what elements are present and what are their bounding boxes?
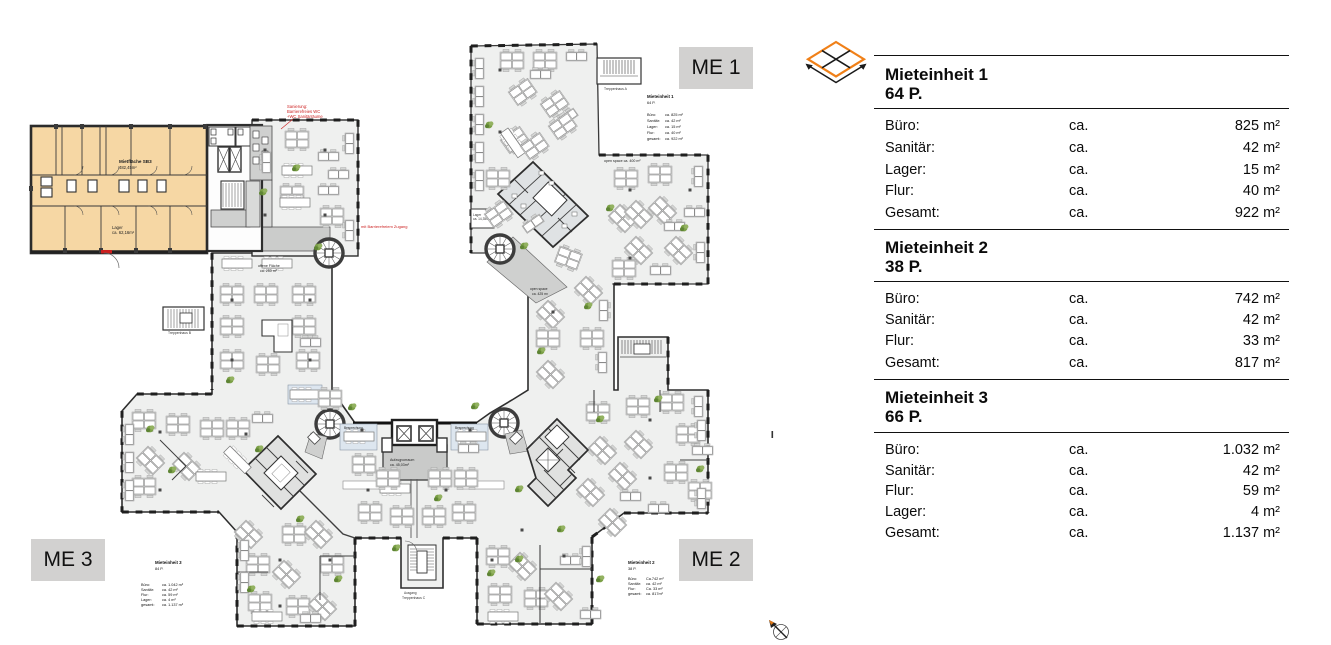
svg-text:ca. 922 m²: ca. 922 m²: [665, 137, 684, 141]
svg-text:offene Fläche: offene Fläche: [258, 264, 280, 268]
svg-text:ca. 62,16m²: ca. 62,16m²: [112, 230, 135, 235]
svg-text:gesamt:: gesamt:: [141, 603, 155, 607]
svg-text:Treppenhaus A: Treppenhaus A: [604, 87, 628, 91]
svg-text:ca. 59 m²: ca. 59 m²: [162, 593, 179, 597]
svg-text:ca. 42 m²: ca. 42 m²: [665, 119, 682, 123]
svg-text:ca. 45,03m²: ca. 45,03m²: [390, 463, 410, 467]
svg-text:Mietfläche SB3: Mietfläche SB3: [119, 159, 152, 164]
svg-text:ca. 825 m²: ca. 825 m²: [665, 113, 684, 117]
svg-text:gesamt:: gesamt:: [647, 137, 661, 141]
svg-text:Sanitär:: Sanitär:: [141, 588, 154, 592]
svg-text:ca. 1.137 m²: ca. 1.137 m²: [162, 603, 184, 607]
svg-text:Mieteinheit 3: Mieteinheit 3: [155, 560, 182, 565]
svg-text:ca. 250 m²: ca. 250 m²: [260, 269, 278, 273]
svg-text:Flur:: Flur:: [647, 131, 655, 135]
svg-text:482,45m²: 482,45m²: [119, 165, 137, 170]
svg-text:Büro:: Büro:: [141, 583, 150, 587]
svg-text:Mieteinheit 2: Mieteinheit 2: [628, 560, 655, 565]
svg-text:Flur:: Flur:: [628, 587, 636, 591]
svg-text:Ausgang: Ausgang: [404, 591, 417, 595]
svg-text:Sanitär:: Sanitär:: [628, 582, 641, 586]
svg-text:Ca. 33 m²: Ca. 33 m²: [646, 587, 663, 591]
svg-text:gesamt:: gesamt:: [628, 592, 642, 596]
svg-text:Sanitär:: Sanitär:: [647, 119, 660, 123]
svg-text:Lager:: Lager:: [647, 125, 658, 129]
svg-text:ca. 15 m²: ca. 15 m²: [665, 125, 682, 129]
svg-text:Büro:: Büro:: [647, 113, 656, 117]
svg-text:open space ca. 400 m²: open space ca. 400 m²: [604, 159, 641, 163]
svg-text:Aufzugvorraum: Aufzugvorraum: [390, 458, 414, 462]
svg-text:ca. 42 m²: ca. 42 m²: [162, 588, 179, 592]
svg-text:Treppenhaus B: Treppenhaus B: [168, 331, 192, 335]
svg-text:open space: open space: [530, 287, 548, 291]
svg-text:mit Barrierefreiem Zugang: mit Barrierefreiem Zugang: [361, 224, 407, 229]
svg-text:ca. 4 m²: ca. 4 m²: [162, 598, 176, 602]
svg-text:ca. 40 m²: ca. 40 m²: [665, 131, 682, 135]
svg-text:64 P.: 64 P.: [647, 101, 655, 105]
svg-text:ca. 425 m²: ca. 425 m²: [532, 292, 549, 296]
svg-text:ca. 1.042 m²: ca. 1.042 m²: [162, 583, 184, 587]
svg-text:Lager:: Lager:: [141, 598, 152, 602]
svg-text:Büro:: Büro:: [628, 577, 637, 581]
svg-text:Besprechung: Besprechung: [344, 426, 363, 430]
svg-text:Mieteinheit 1: Mieteinheit 1: [647, 94, 674, 99]
svg-text:Flur:: Flur:: [141, 593, 149, 597]
svg-text:ca. 817m²: ca. 817m²: [646, 592, 664, 596]
svg-text:ca. 42 m²: ca. 42 m²: [646, 582, 663, 586]
svg-text:Ca.742 m²: Ca.742 m²: [646, 577, 664, 581]
svg-text:38 P.: 38 P.: [628, 567, 636, 571]
svg-text:Treppenhaus C: Treppenhaus C: [402, 596, 426, 600]
svg-text:84 P.: 84 P.: [155, 567, 163, 571]
svg-text:+WC Sanitärräume: +WC Sanitärräume: [287, 114, 323, 119]
